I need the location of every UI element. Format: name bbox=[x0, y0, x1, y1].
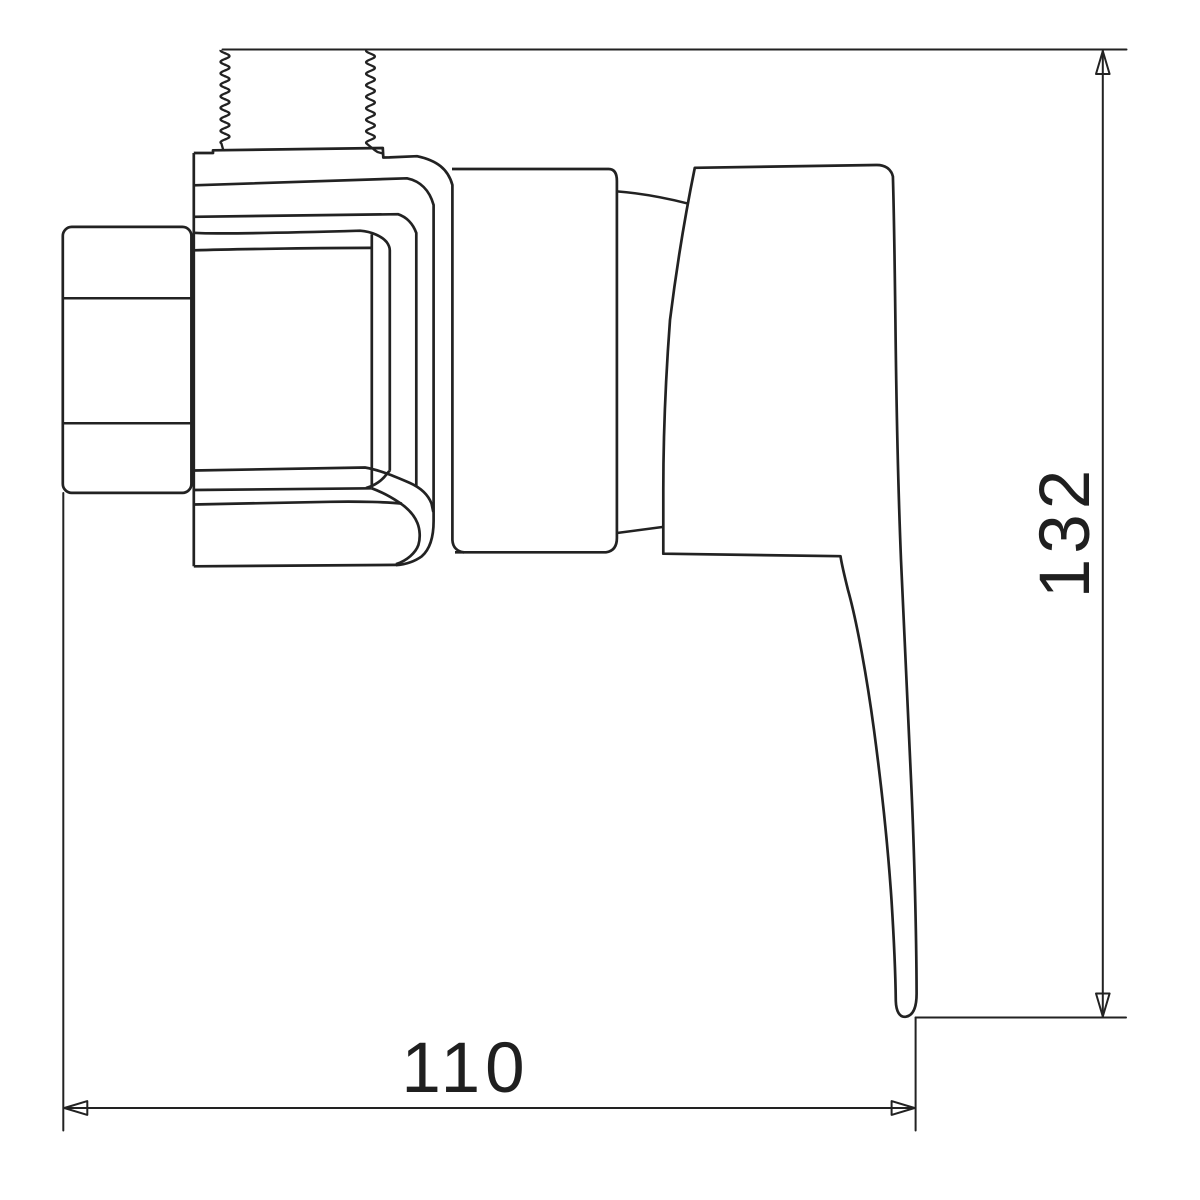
svg-text:110: 110 bbox=[401, 1029, 529, 1108]
svg-text:132: 132 bbox=[1026, 465, 1105, 598]
